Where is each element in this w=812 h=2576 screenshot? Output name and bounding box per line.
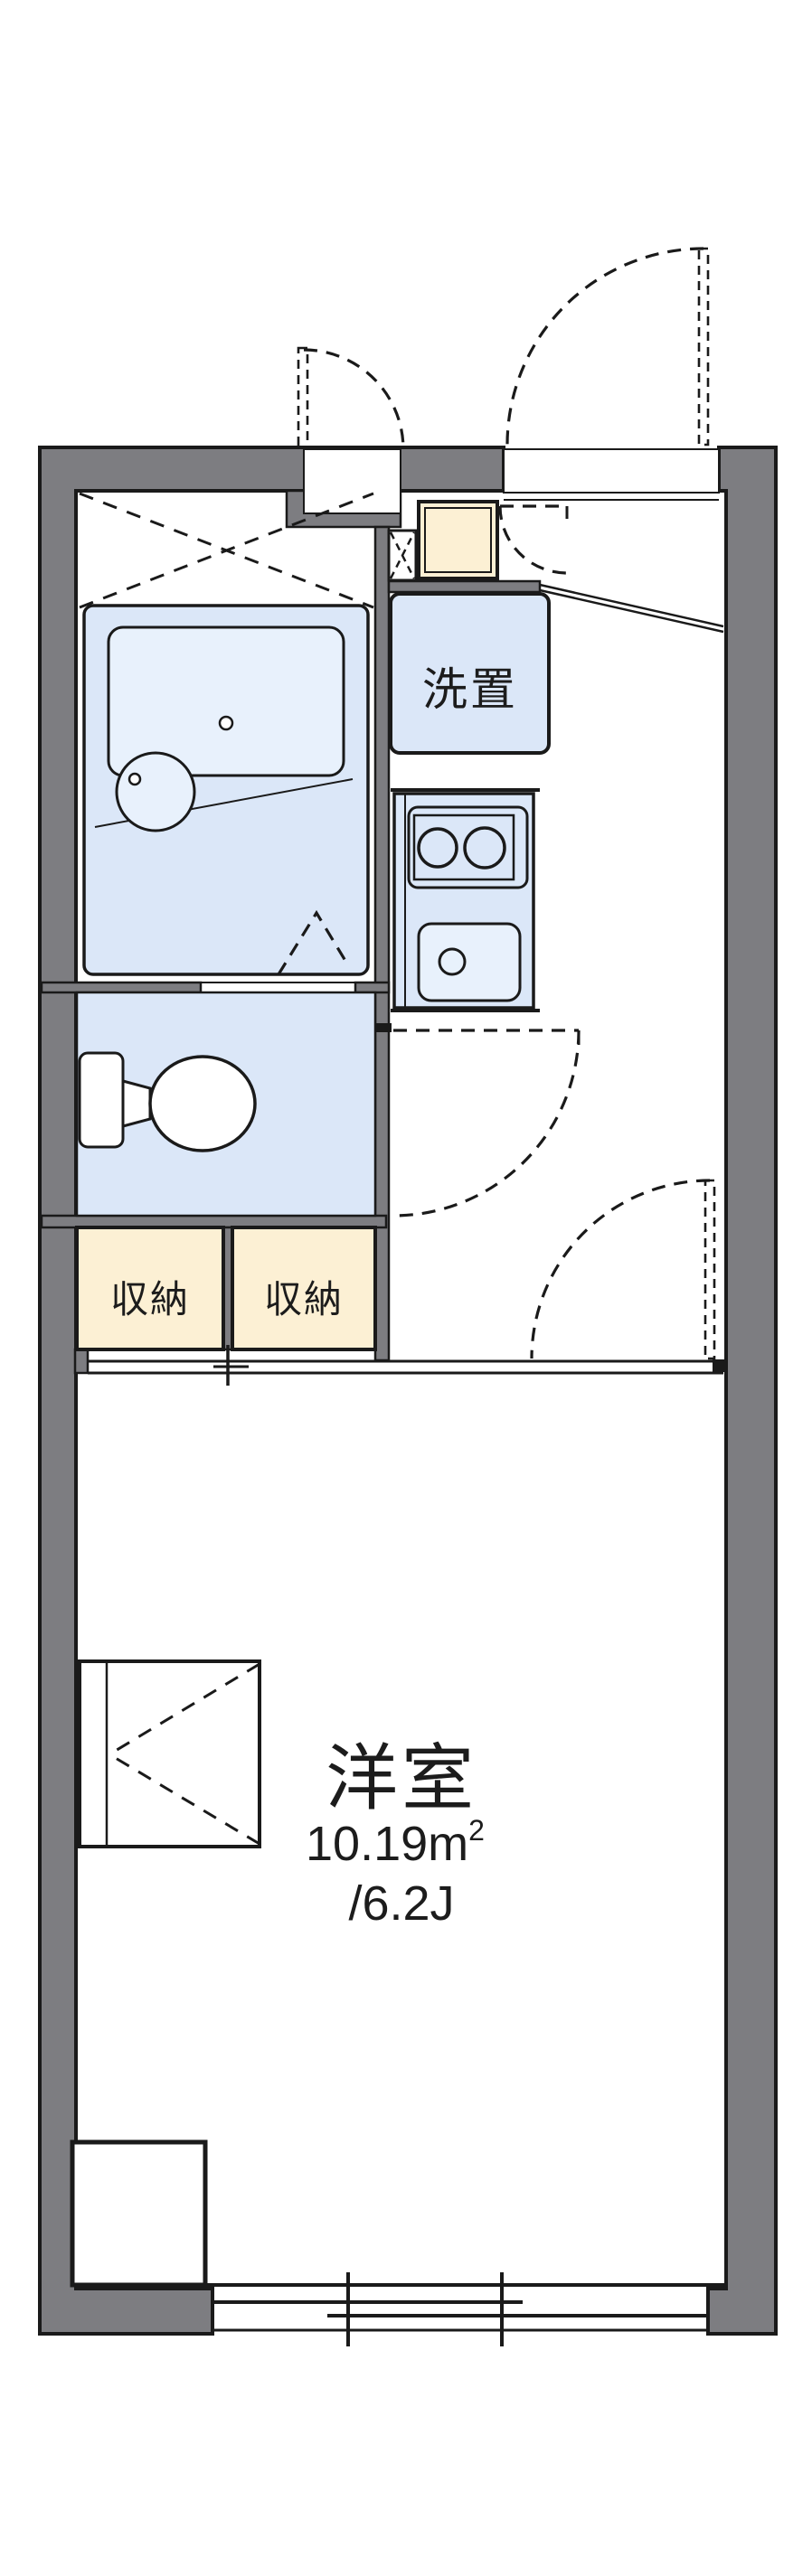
entrance-threshold bbox=[504, 449, 719, 493]
washer-space: 洗置 bbox=[391, 594, 549, 753]
room-area-value: 10.19 bbox=[306, 1817, 428, 1871]
bathtub-icon bbox=[109, 627, 344, 776]
meter-box-door-swing-icon bbox=[298, 348, 403, 449]
kitchen-unit bbox=[391, 790, 540, 1011]
western-room: 洋室 10.19m2 /6.2J bbox=[72, 1661, 485, 2285]
room-area-unit: m bbox=[428, 1817, 468, 1871]
toilet-tank bbox=[80, 1053, 123, 1147]
stove-burner-left bbox=[419, 829, 457, 867]
storage-left-label: 収納 bbox=[110, 1278, 190, 1321]
washer-space-label: 洗置 bbox=[422, 664, 518, 715]
room-area-sup: 2 bbox=[468, 1814, 485, 1847]
room-name-label: 洋室 bbox=[326, 1738, 477, 1819]
entrance-step-line bbox=[540, 585, 723, 632]
room-area-label: 10.19m2 bbox=[306, 1814, 485, 1871]
sink-faucet bbox=[439, 949, 465, 974]
washbasin-icon bbox=[117, 753, 194, 831]
bath-toilet-wall-left bbox=[42, 982, 201, 992]
meter-box-recess bbox=[304, 449, 401, 513]
genkan-stub-wall bbox=[389, 581, 540, 592]
storage-step bbox=[75, 1349, 88, 1373]
room-door-swing-icon bbox=[532, 1180, 714, 1359]
entrance-door-swing-icon bbox=[507, 249, 708, 445]
sink-icon bbox=[419, 924, 520, 1001]
bath-toilet-wall-right bbox=[355, 982, 389, 992]
room-tatami-label: /6.2J bbox=[348, 1876, 454, 1931]
counter-desk-icon bbox=[72, 2142, 205, 2285]
pipe-space bbox=[389, 531, 416, 580]
washbasin-faucet bbox=[129, 774, 140, 785]
bath-kitchen-wall bbox=[375, 527, 389, 1360]
water-heater bbox=[419, 502, 497, 578]
cabinet-door-swing-icon bbox=[500, 506, 567, 573]
toilet-icon bbox=[150, 1057, 255, 1151]
hall-door-swing-icon bbox=[393, 1030, 579, 1216]
floor-plan-page: 収納 収納 洗置 bbox=[0, 0, 812, 2576]
toilet-seat bbox=[123, 1081, 150, 1126]
storage-right-label: 収納 bbox=[264, 1278, 344, 1321]
toilet-room bbox=[77, 992, 375, 1216]
folding-bed-icon bbox=[80, 1661, 260, 1847]
unit-bath bbox=[80, 494, 373, 974]
stove-burner-right bbox=[465, 828, 505, 868]
floor-plan-canvas: 収納 収納 洗置 bbox=[0, 0, 812, 2576]
bathtub-drain bbox=[220, 717, 232, 729]
